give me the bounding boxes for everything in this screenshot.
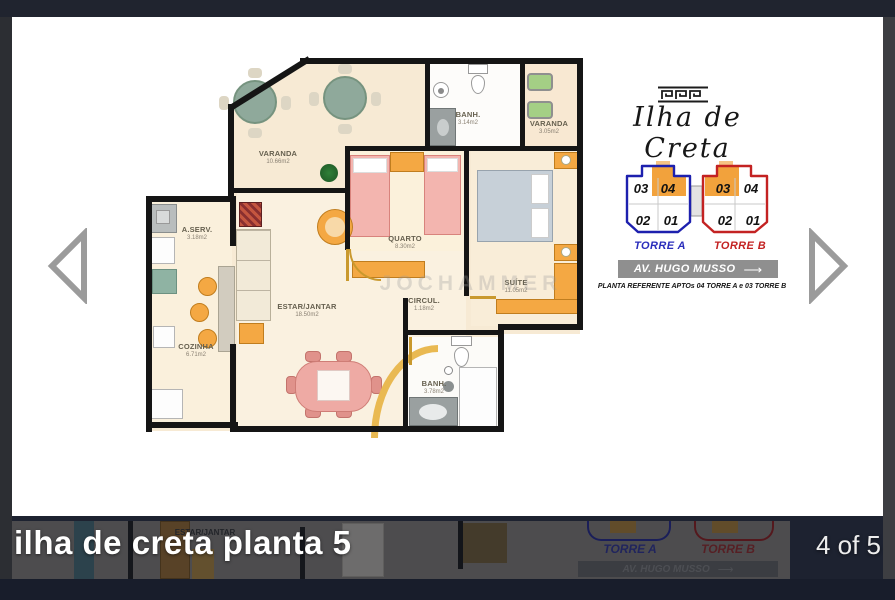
unit-number: 04 — [744, 181, 759, 196]
faucet — [444, 366, 453, 375]
round-table — [323, 76, 367, 120]
unit-number-highlighted: 04 — [661, 181, 676, 196]
room-label-banh-1: BANH. 3.14m2 — [456, 111, 481, 127]
chair — [309, 92, 319, 106]
door-leaf — [409, 337, 412, 365]
lounge-chair — [527, 101, 553, 119]
wall — [498, 324, 583, 330]
brand-logo: Ilha de Creta — [585, 102, 790, 164]
sink-drain — [438, 88, 444, 94]
stove — [153, 326, 175, 348]
unit-number: 02 — [636, 213, 651, 228]
chair — [248, 68, 262, 78]
room-name: VARANDA — [530, 120, 568, 129]
room-area: 3.78m2 — [422, 389, 447, 396]
unit-number: 02 — [718, 213, 733, 228]
floor-mask — [145, 58, 231, 196]
washer-door — [156, 210, 170, 224]
next-button[interactable] — [806, 228, 852, 304]
gallery-viewer: VARANDA 10.66m2 BANH. 3.14m2 VARANDA 3.0… — [0, 0, 895, 600]
room-label-estar: ESTAR/JANTAR 18.50m2 — [277, 303, 336, 319]
floor-mask — [504, 334, 586, 434]
chair — [371, 92, 381, 106]
frame-bottom — [0, 579, 895, 600]
street-sign: AV. HUGO MUSSO ⟶ — [618, 260, 778, 278]
vanity-sink — [419, 404, 447, 420]
chevron-left-icon — [44, 228, 90, 304]
chair — [281, 96, 291, 110]
door-leaf — [470, 296, 496, 299]
stool — [198, 277, 217, 296]
room-area: 1.18m2 — [408, 306, 440, 313]
wall — [228, 104, 234, 198]
wardrobe — [496, 299, 578, 314]
room-area: 8.30m2 — [388, 244, 422, 251]
pillow — [427, 158, 458, 172]
room-area: 18.50m2 — [277, 312, 336, 319]
chair — [338, 124, 352, 134]
wall — [228, 188, 350, 193]
wall — [403, 298, 408, 428]
table-runner — [317, 370, 350, 401]
room-name: COZINHA — [178, 343, 214, 352]
coffee-table — [239, 323, 264, 344]
lamp — [561, 155, 571, 165]
room-area: 3.14m2 — [456, 120, 481, 127]
room-label-varanda-1: VARANDA 10.66m2 — [259, 150, 297, 166]
lounge-chair — [527, 73, 553, 91]
room-area: 6.71m2 — [178, 352, 214, 359]
room-area: 10.66m2 — [259, 159, 297, 166]
tv-rack — [239, 202, 262, 227]
room-name: ESTAR/JANTAR — [277, 303, 336, 312]
room-label-varanda-2: VARANDA 3.05m2 — [530, 120, 568, 136]
wall — [230, 426, 504, 432]
plant — [320, 164, 338, 182]
toilet-tank — [468, 64, 488, 74]
room-name: QUARTO — [388, 235, 422, 244]
pillow — [531, 174, 549, 204]
wall — [403, 330, 503, 335]
room-name: BANH. — [422, 380, 447, 389]
bath-counter — [459, 367, 497, 427]
pillow — [353, 158, 387, 173]
frame-right — [883, 17, 895, 579]
kitchen-sink — [152, 269, 177, 294]
frame-top — [0, 0, 895, 17]
pillow — [531, 208, 549, 238]
room-name: SUÍTE — [504, 279, 527, 288]
room-label-cozinha: COZINHA 6.71m2 — [178, 343, 214, 359]
wall — [230, 344, 236, 428]
arrow-right-icon: ⟶ — [743, 263, 762, 276]
room-name: A.SERV. — [182, 226, 213, 235]
unit-number: 01 — [746, 213, 760, 228]
room-name: BANH. — [456, 111, 481, 120]
wall — [520, 58, 525, 150]
image-counter: 4 of 5 — [816, 530, 881, 561]
wall — [345, 146, 350, 250]
wall — [577, 58, 583, 330]
sofa — [236, 229, 271, 321]
unit-number: 03 — [634, 181, 649, 196]
room-label-circul: CIRCUL. 1.18m2 — [408, 297, 440, 313]
image-caption: ilha de creta planta 5 — [14, 524, 351, 562]
chair — [338, 64, 352, 74]
room-name: CIRCUL. — [408, 297, 440, 306]
room-area: 3.18m2 — [182, 235, 213, 242]
tower-diagram: 03 04 02 01 03 04 02 01 — [622, 160, 772, 240]
fridge — [149, 389, 183, 419]
lamp — [561, 247, 571, 257]
wall — [425, 58, 430, 150]
armchair-cushion — [325, 217, 345, 237]
shower-drain — [437, 119, 449, 136]
wall — [146, 196, 152, 432]
room-label-suite: SUÍTE 11.05m2 — [504, 279, 527, 295]
wall — [498, 330, 504, 432]
prev-button[interactable] — [44, 228, 90, 304]
wall — [146, 422, 238, 428]
tower-label-b: TORRE B — [690, 240, 790, 252]
room-area: 3.05m2 — [530, 129, 568, 136]
unit-number-highlighted: 03 — [716, 181, 731, 196]
toilet-tank — [451, 336, 472, 346]
street-name: AV. HUGO MUSSO — [634, 263, 736, 275]
wall — [146, 196, 234, 202]
stool — [190, 303, 209, 322]
chevron-right-icon — [806, 228, 852, 304]
wall — [464, 146, 469, 296]
laundry-tub — [151, 237, 175, 264]
plan-note: PLANTA REFERENTE APTOs 04 TORRE A e 03 T… — [586, 283, 798, 290]
room-label-quarto: QUARTO 8.30m2 — [388, 235, 422, 251]
room-area: 11.05m2 — [504, 288, 527, 295]
unit-number: 01 — [664, 213, 678, 228]
room-label-aserv: A.SERV. 3.18m2 — [182, 226, 213, 242]
wall — [300, 58, 583, 64]
chair — [248, 128, 262, 138]
room-name: VARANDA — [259, 150, 297, 159]
counter — [218, 266, 235, 352]
wall — [230, 196, 236, 246]
room-label-banh-2: BANH. 3.78m2 — [422, 380, 447, 396]
nightstand — [390, 152, 424, 172]
frame-left — [0, 17, 12, 579]
